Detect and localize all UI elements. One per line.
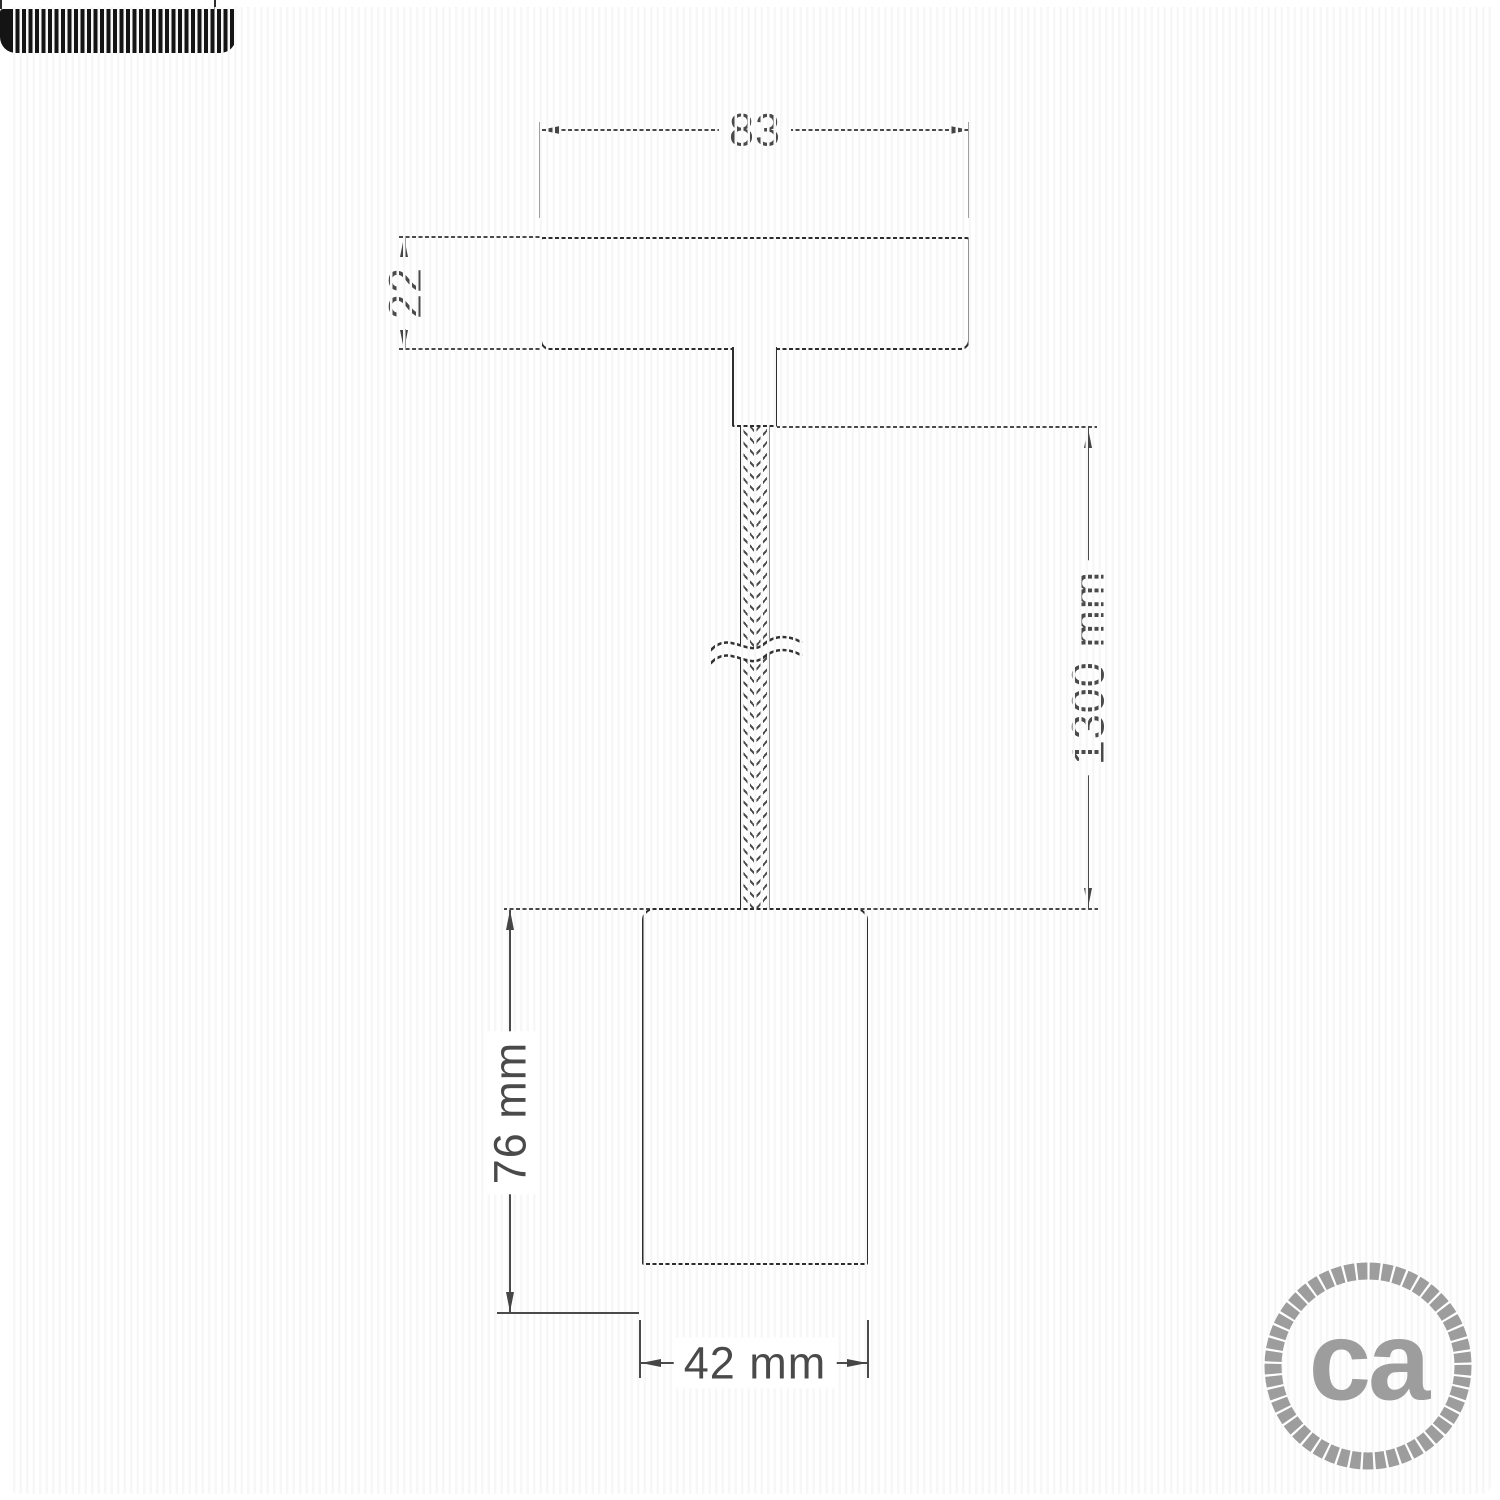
- dim-spot-diameter-label: 42 mm: [674, 1338, 837, 1389]
- arrowhead-down-icon: [506, 1292, 514, 1312]
- arrowhead-up-icon: [506, 910, 514, 930]
- extension-line: [497, 1312, 639, 1314]
- creative-cables-logo: ca: [1262, 1260, 1474, 1472]
- knurled-trim-ring: [0, 9, 236, 53]
- dim-spot-height-label: 76 mm: [485, 1032, 536, 1195]
- extension-line: [867, 1320, 869, 1378]
- technical-drawing-canvas: 83 22 1300 mm 76 mm: [0, 0, 1500, 1500]
- arrowhead-left-icon: [641, 1359, 661, 1367]
- arrowhead-right-icon: [847, 1359, 867, 1367]
- extension-line: [639, 1320, 641, 1378]
- logo-text: ca: [1309, 1296, 1428, 1425]
